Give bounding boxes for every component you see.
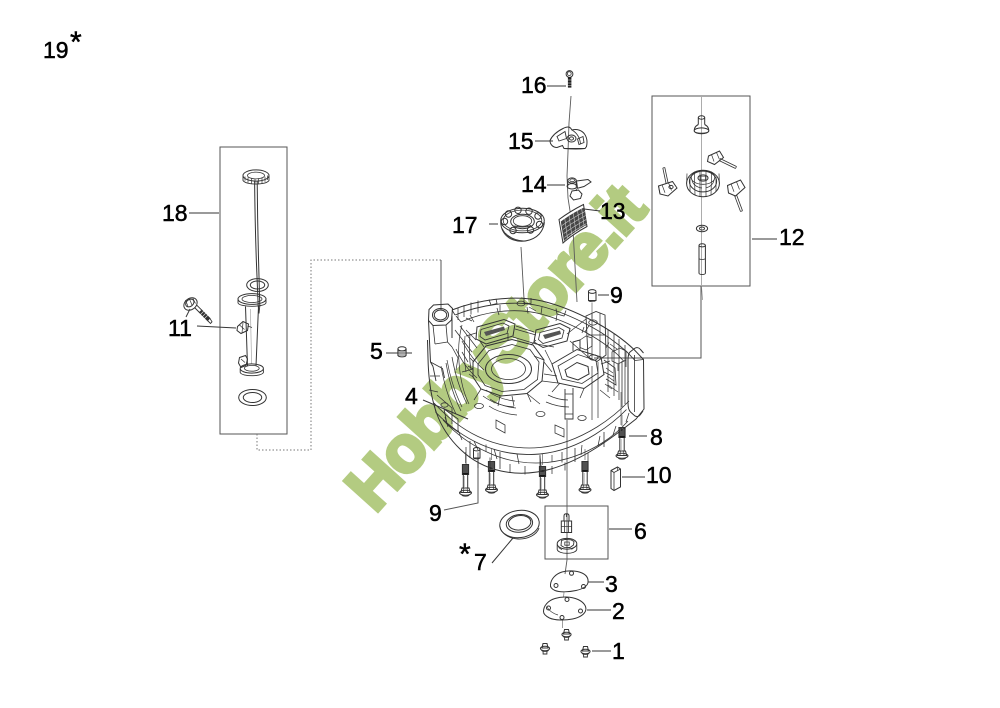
svg-text:3: 3	[605, 571, 618, 597]
svg-text:1: 1	[612, 638, 625, 664]
svg-text:17: 17	[452, 212, 478, 238]
svg-text:13: 13	[600, 198, 626, 224]
svg-text:6: 6	[634, 518, 647, 544]
svg-text:18: 18	[162, 200, 188, 226]
svg-text:10: 10	[646, 462, 672, 488]
svg-text:8: 8	[650, 424, 663, 450]
svg-text:*: *	[459, 538, 471, 571]
svg-text:16: 16	[521, 72, 547, 98]
svg-text:7: 7	[474, 549, 487, 575]
svg-text:9: 9	[429, 500, 442, 526]
svg-text:19: 19	[43, 37, 69, 63]
svg-text:15: 15	[508, 128, 534, 154]
svg-text:4: 4	[405, 383, 418, 409]
svg-text:9: 9	[610, 282, 623, 308]
svg-text:*: *	[70, 26, 82, 59]
svg-text:5: 5	[370, 338, 383, 364]
svg-text:12: 12	[779, 224, 805, 250]
svg-text:14: 14	[521, 171, 547, 197]
svg-text:11: 11	[168, 315, 192, 341]
svg-text:2: 2	[612, 598, 625, 624]
